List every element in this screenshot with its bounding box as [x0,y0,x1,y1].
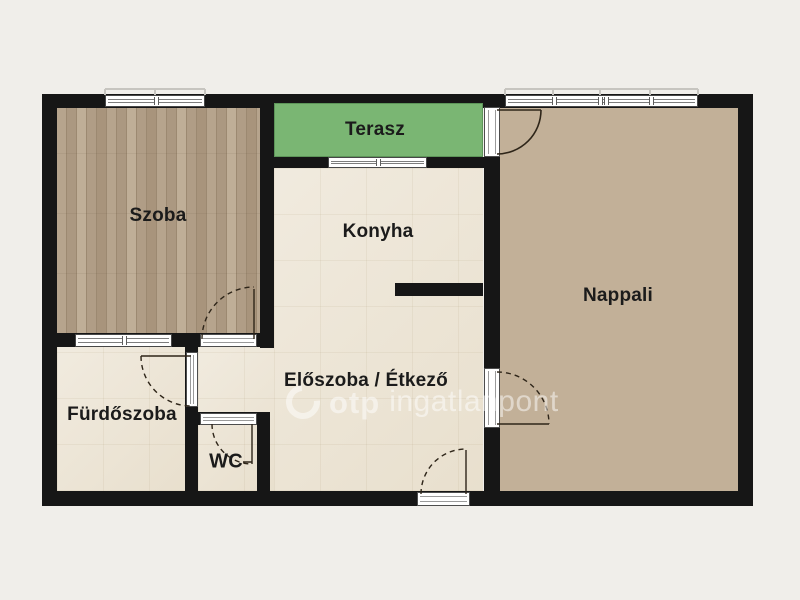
room-label-furdoszoba: Fürdőszoba [67,404,177,426]
floorplan: Szoba Terasz Konyha Nappali Előszoba / É… [0,0,800,600]
room-label-wc: WC [209,451,243,474]
room-label-konyha: Konyha [343,221,414,243]
room-label-nappali: Nappali [583,285,653,307]
door-swing-layer [0,0,800,600]
room-label-szoba: Szoba [130,205,187,227]
room-label-eloszoba: Előszoba / Étkező [284,370,448,392]
room-label-terasz: Terasz [345,119,405,141]
